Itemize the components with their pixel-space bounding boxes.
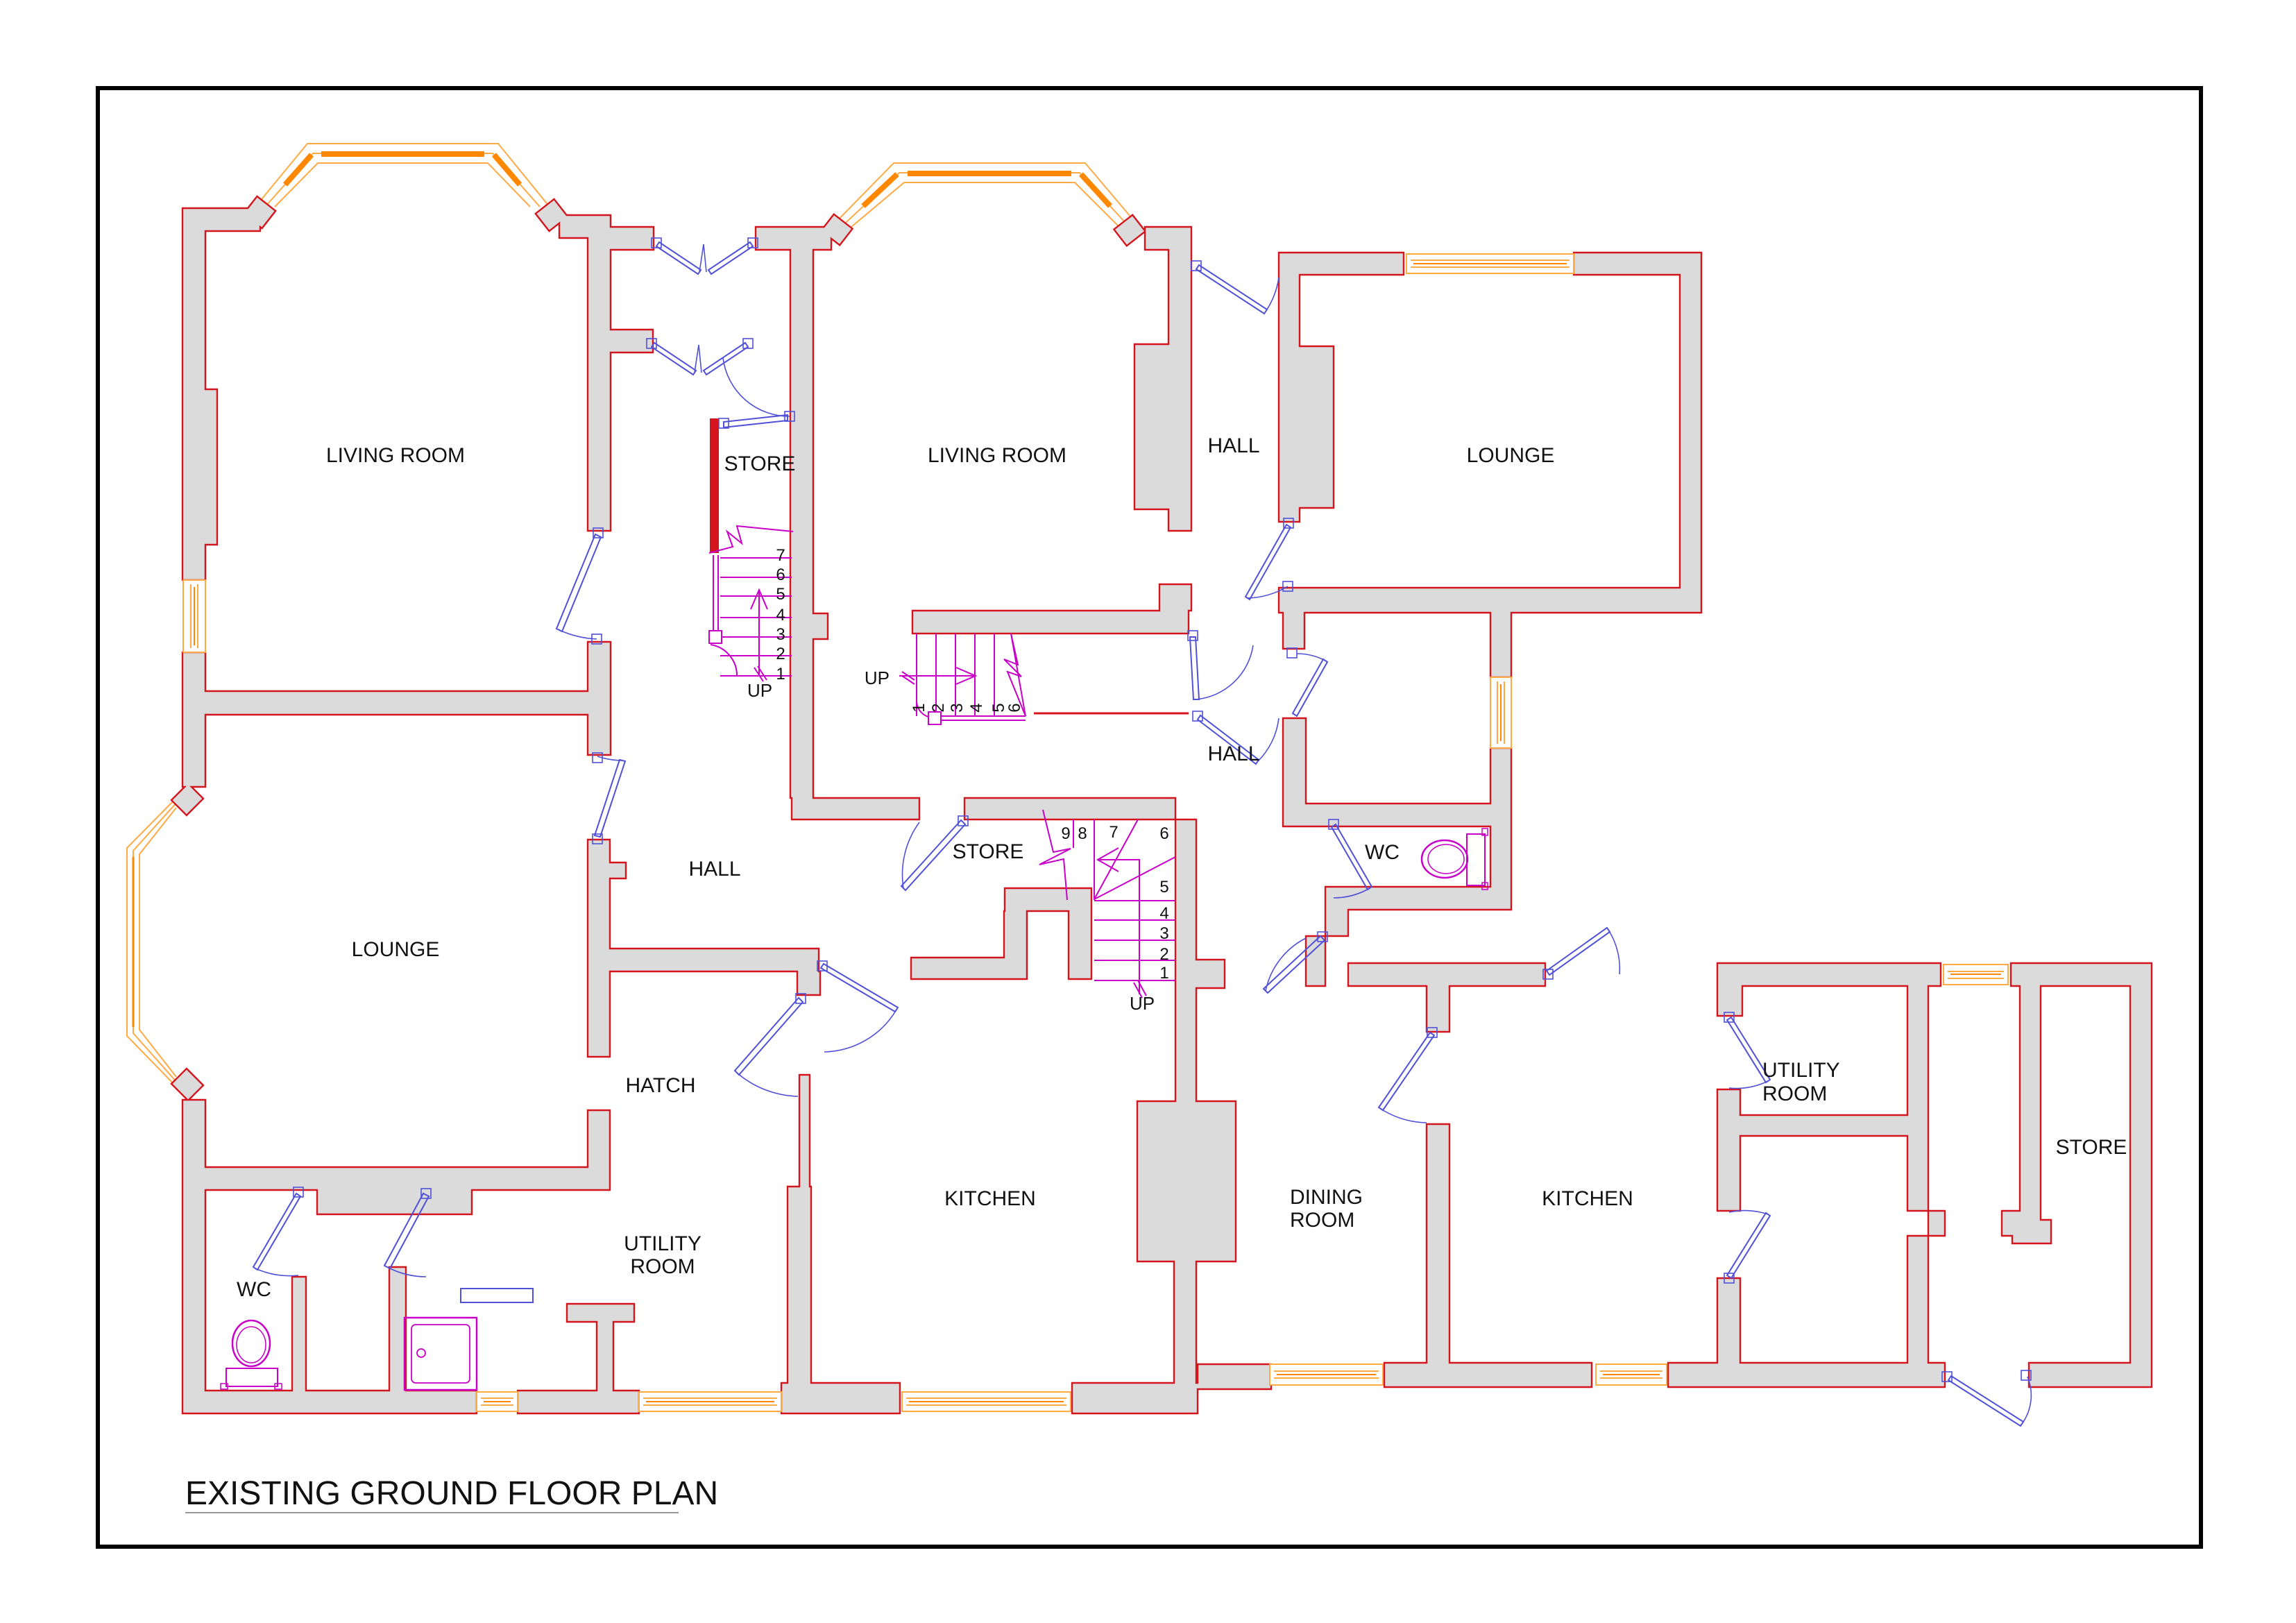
svg-text:KITCHEN: KITCHEN (944, 1187, 1036, 1210)
svg-text:1: 1 (776, 665, 785, 683)
svg-text:HALL: HALL (1207, 742, 1259, 765)
svg-text:LOUNGE: LOUNGE (352, 938, 440, 961)
svg-text:EXISTING GROUND FLOOR PLAN: EXISTING GROUND FLOOR PLAN (185, 1475, 718, 1512)
svg-text:HALL: HALL (688, 858, 740, 881)
svg-text:STORE: STORE (953, 840, 1024, 863)
svg-text:2: 2 (929, 703, 948, 712)
svg-text:STORE: STORE (2056, 1136, 2127, 1159)
svg-text:1: 1 (1159, 964, 1168, 983)
svg-text:3: 3 (776, 625, 785, 644)
svg-text:UP: UP (1130, 993, 1155, 1014)
svg-text:LIVING ROOM: LIVING ROOM (928, 444, 1066, 467)
svg-text:WC: WC (1365, 841, 1400, 864)
svg-text:4: 4 (1159, 904, 1168, 923)
svg-text:5: 5 (776, 585, 785, 604)
svg-text:6: 6 (1005, 703, 1024, 712)
svg-text:8: 8 (1078, 824, 1087, 843)
svg-text:WC: WC (237, 1278, 271, 1301)
svg-text:5: 5 (1159, 878, 1168, 897)
svg-text:6: 6 (776, 566, 785, 584)
svg-text:7: 7 (776, 546, 785, 565)
svg-text:STORE: STORE (724, 452, 796, 475)
svg-text:DINING: DINING (1290, 1186, 1363, 1209)
svg-text:HATCH: HATCH (625, 1074, 695, 1097)
svg-text:4: 4 (776, 606, 785, 624)
svg-text:LOUNGE: LOUNGE (1467, 444, 1555, 467)
svg-text:LIVING ROOM: LIVING ROOM (326, 444, 465, 467)
svg-text:2: 2 (776, 645, 785, 663)
svg-text:2: 2 (1159, 945, 1168, 964)
svg-text:ROOM: ROOM (630, 1255, 695, 1278)
svg-text:9: 9 (1061, 824, 1070, 843)
svg-text:UTILITY: UTILITY (624, 1232, 701, 1255)
svg-text:UTILITY: UTILITY (1762, 1059, 1840, 1082)
svg-text:7: 7 (1109, 823, 1118, 842)
svg-text:ROOM: ROOM (1290, 1209, 1354, 1232)
svg-text:HALL: HALL (1207, 434, 1259, 457)
svg-text:6: 6 (1159, 824, 1168, 843)
svg-text:UP: UP (747, 680, 772, 701)
svg-text:4: 4 (967, 703, 986, 712)
svg-text:UP: UP (865, 668, 890, 688)
svg-text:ROOM: ROOM (1762, 1082, 1827, 1105)
svg-text:3: 3 (1159, 924, 1168, 943)
svg-text:KITCHEN: KITCHEN (1542, 1187, 1633, 1210)
svg-text:1: 1 (910, 703, 928, 712)
svg-text:3: 3 (948, 703, 967, 712)
